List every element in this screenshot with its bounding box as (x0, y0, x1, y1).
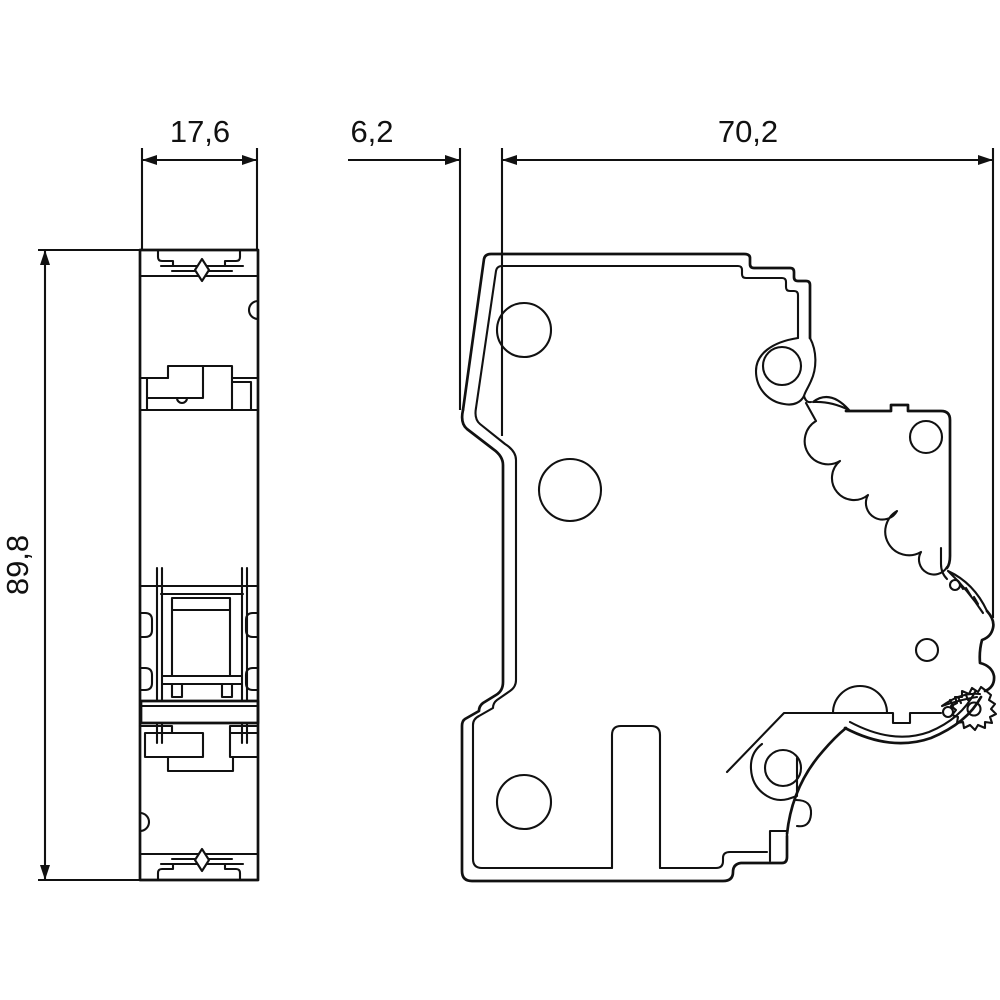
front-face-outer (462, 410, 787, 881)
mounting-foot (770, 831, 787, 861)
lower-terminal-housing (751, 744, 811, 826)
inner-bottom (660, 852, 767, 868)
case-hole (916, 639, 938, 661)
toggle-bar (141, 701, 258, 723)
clip-claw-upper (948, 571, 987, 613)
bottom-terminal-clip (140, 849, 258, 880)
rear-terminal-outline (846, 405, 950, 568)
upper-rear-ear (756, 338, 849, 410)
screw-hole (763, 347, 801, 385)
arrow-down-icon (40, 865, 50, 880)
arrow-left-icon (502, 155, 517, 165)
toggle-frame-posts (157, 568, 247, 701)
rear-lobes (980, 611, 994, 691)
dome-detail (833, 686, 887, 713)
clip-pointer (195, 259, 209, 281)
case-hole (497, 775, 551, 829)
middle-terminal-block (140, 366, 258, 410)
label-window (172, 598, 230, 676)
arrow-left-icon (142, 155, 157, 165)
toggle-lever-inner (476, 266, 798, 408)
clip-pointer (195, 849, 209, 871)
dimension-label-body-depth: 70,2 (718, 114, 778, 149)
dimension-label-handle-depth: 6,2 (350, 114, 393, 149)
eyebrow-detail (813, 397, 849, 410)
scalloped-boundary (805, 403, 947, 575)
din-rail-rib (612, 726, 660, 868)
dimension-label-width: 17,6 (170, 114, 230, 149)
case-hole (497, 303, 551, 357)
side-view (462, 254, 996, 881)
front-view-outline (140, 250, 258, 880)
arrow-right-icon (445, 155, 460, 165)
toggle-area (140, 568, 258, 771)
top-terminal-clip (140, 250, 258, 281)
dimension-drawing-canvas: 17,6 6,2 70,2 89,8 (0, 0, 1000, 1000)
pivot-pin (943, 707, 953, 717)
arrow-right-icon (978, 155, 993, 165)
front-view (140, 250, 258, 880)
technical-drawing-page: 17,6 6,2 70,2 89,8 (0, 0, 1000, 1000)
terminal-screw-hole (910, 421, 942, 453)
arrow-right-icon (242, 155, 257, 165)
dimension-label-height: 89,8 (0, 535, 35, 595)
case-hole (539, 459, 601, 521)
arrow-up-icon (40, 250, 50, 265)
terminal-screw-hole (765, 750, 801, 786)
